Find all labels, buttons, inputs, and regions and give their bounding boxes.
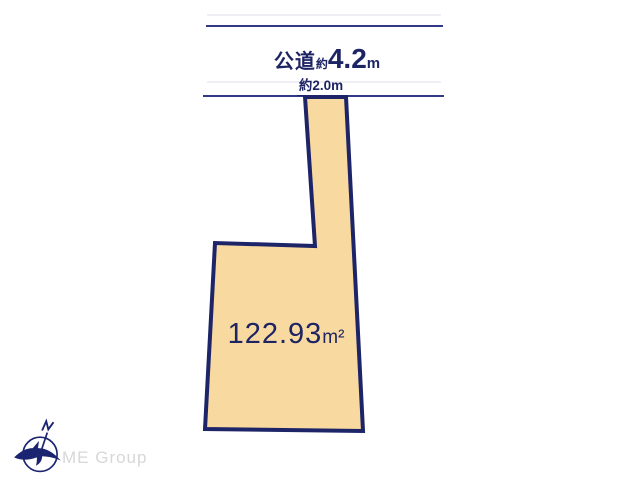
lot-area-value: 122.93 bbox=[228, 318, 323, 350]
road-width-unit: m bbox=[367, 55, 380, 72]
land-plot-shape bbox=[205, 97, 363, 431]
company-name: ME Group bbox=[62, 448, 147, 468]
lot-area-label: 122.93m² bbox=[186, 320, 386, 349]
road-approx-prefix: 約 bbox=[316, 57, 328, 71]
me-group-logo: ME Group bbox=[12, 416, 232, 476]
site-plan-canvas: 公道約4.2m 約2.0m 122.93m² ME Group bbox=[0, 0, 640, 480]
road-label: 公道約4.2m bbox=[227, 45, 427, 73]
bird-compass-icon bbox=[12, 416, 66, 474]
road-width-value: 4.2 bbox=[328, 43, 367, 74]
entrance-width-label: 約2.0m bbox=[221, 74, 421, 96]
road-name: 公道 bbox=[274, 51, 316, 73]
entrance-width-value: 約2.0m bbox=[297, 74, 345, 96]
lot-area-unit: m² bbox=[322, 327, 344, 348]
